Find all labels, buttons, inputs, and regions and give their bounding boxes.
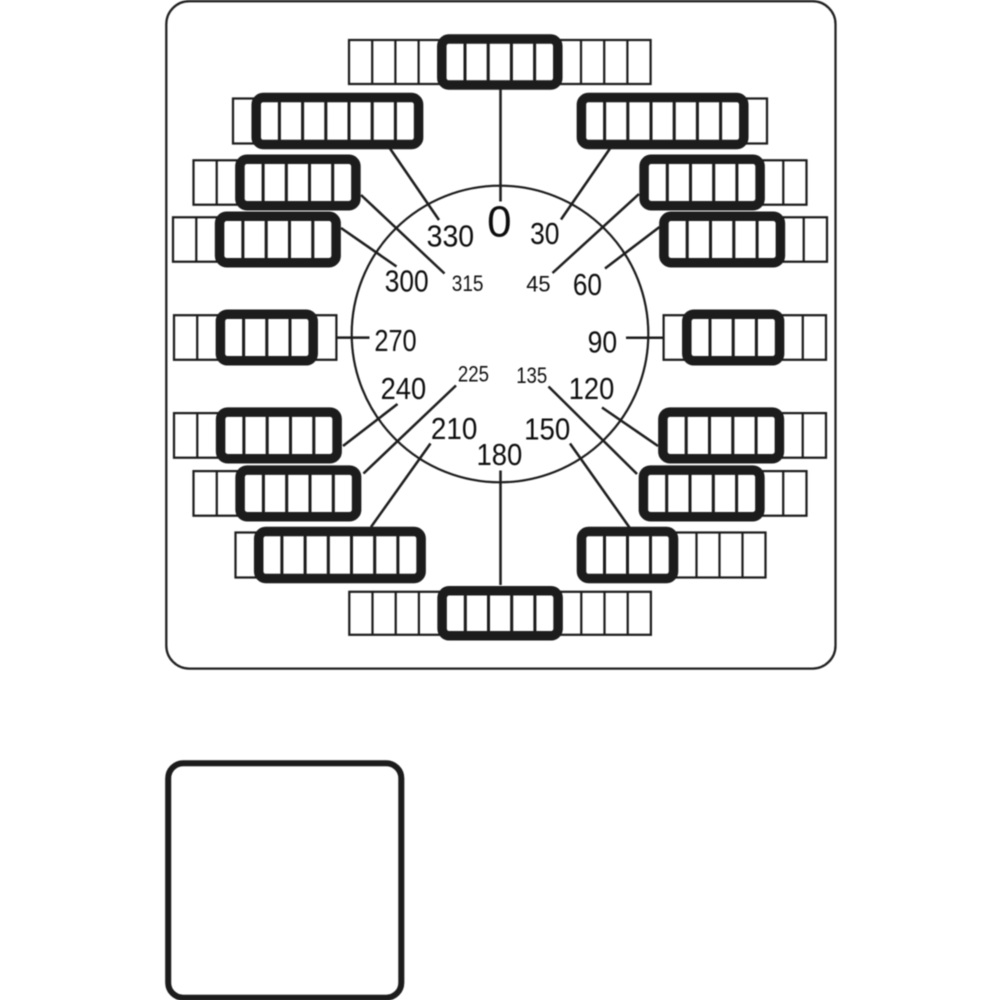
svg-text:45: 45 [526, 272, 550, 297]
svg-text:0: 0 [487, 198, 511, 247]
svg-text:300: 300 [385, 264, 429, 299]
svg-text:270: 270 [374, 323, 416, 358]
svg-text:330: 330 [427, 219, 475, 254]
svg-text:60: 60 [573, 267, 602, 302]
svg-text:315: 315 [452, 271, 484, 296]
svg-text:225: 225 [458, 362, 489, 387]
svg-text:180: 180 [477, 437, 523, 472]
svg-text:210: 210 [431, 411, 477, 446]
svg-text:30: 30 [530, 216, 559, 251]
svg-text:135: 135 [516, 363, 547, 388]
svg-text:150: 150 [524, 412, 570, 447]
svg-text:90: 90 [588, 325, 618, 360]
svg-text:120: 120 [569, 371, 615, 406]
svg-text:240: 240 [381, 371, 427, 406]
